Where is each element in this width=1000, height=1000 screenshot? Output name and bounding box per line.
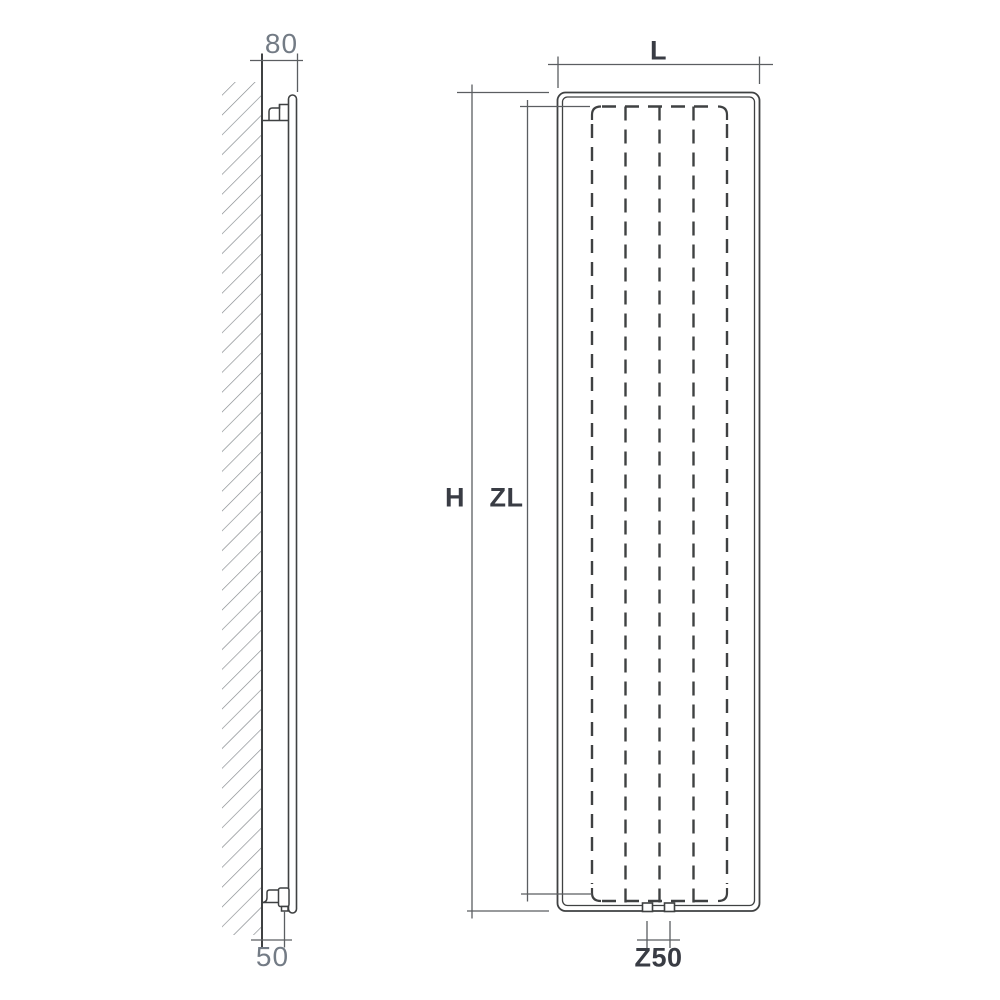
pipe-stub-side [282,907,289,912]
dim-connection-spacing-label: Z50 [634,945,682,972]
bottom-bracket [262,888,289,911]
radiator-panel-side [289,95,297,913]
dim-pipe-offset-label: 50 [256,943,289,971]
dim-inner-height-label: ZL [490,485,524,512]
internal-channels [592,107,727,905]
dim-depth-label: 80 [265,30,298,58]
wall-hatch [222,82,262,935]
top-bracket [262,105,289,121]
dim-height-label: H [445,485,465,512]
radiator-technical-drawing: 80 50 L H ZL Z50 [0,0,1000,1000]
dim-inner-height-ZL [520,100,592,902]
dim-width-label: L [650,38,667,65]
side-view [222,54,303,948]
